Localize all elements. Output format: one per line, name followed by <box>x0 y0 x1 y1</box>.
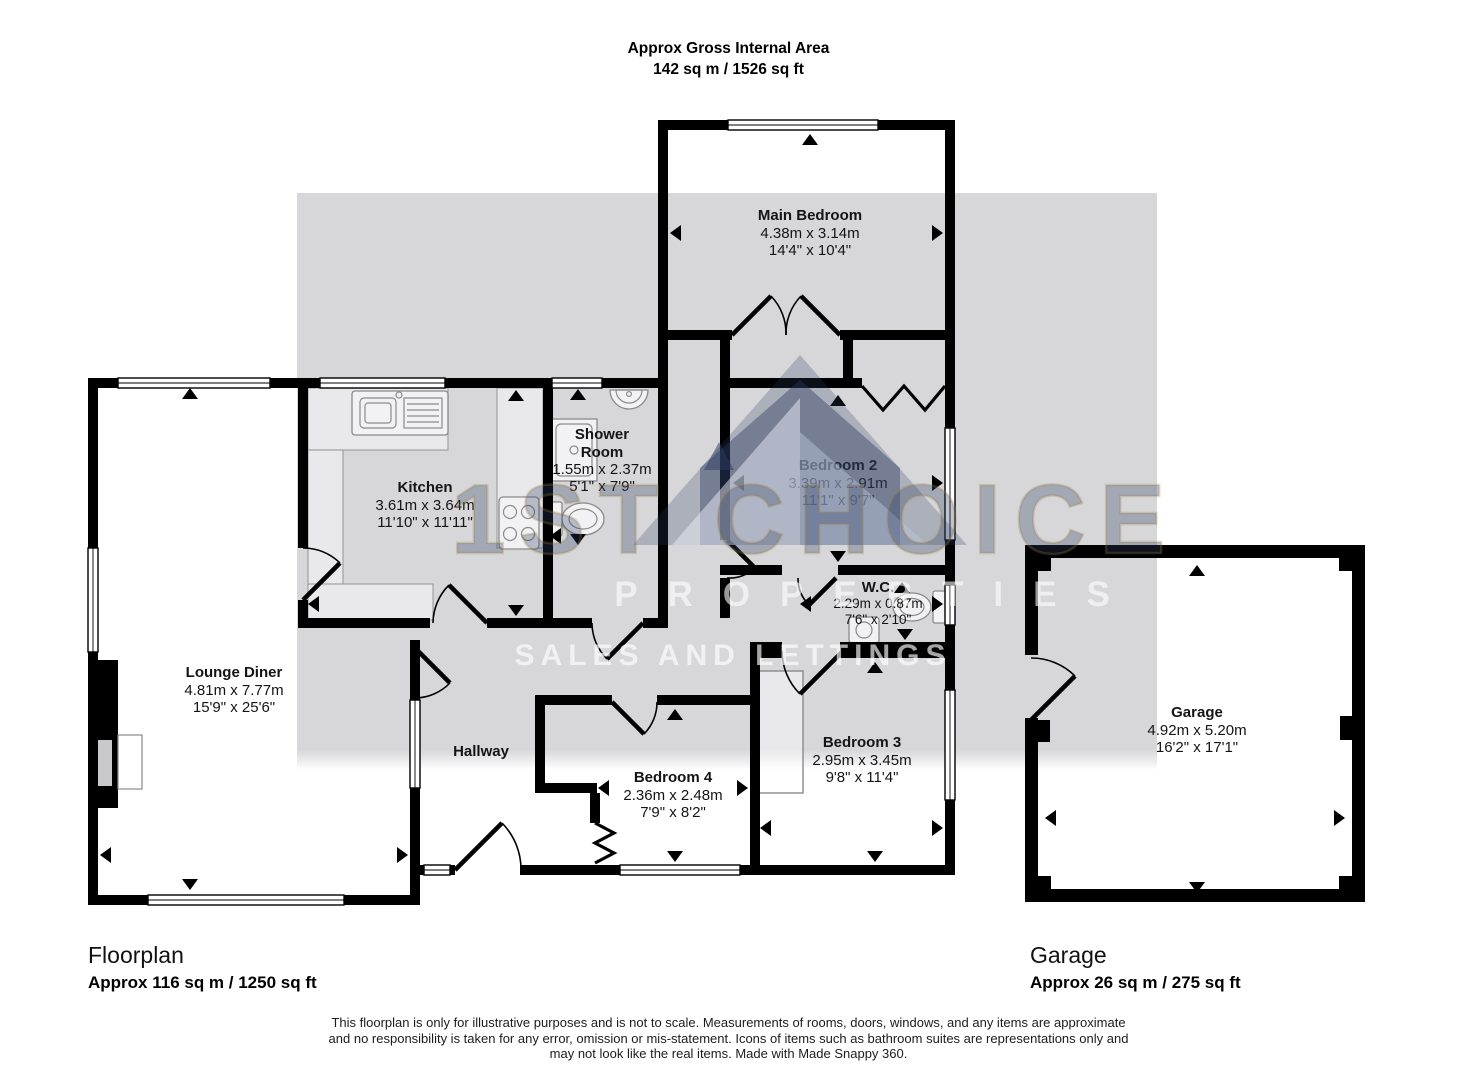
door-front-entry <box>455 823 521 870</box>
garage-imperial: 16'2" x 17'1" <box>1156 739 1238 756</box>
measure-arrow <box>182 879 198 890</box>
garage-name: Garage <box>1171 704 1223 721</box>
wall-segment <box>298 618 430 628</box>
garage-area: Approx 26 sq m / 275 sq ft <box>1030 973 1241 993</box>
wall-segment <box>487 618 545 628</box>
kitchen-name: Kitchen <box>397 479 452 496</box>
measure-arrow <box>760 820 771 836</box>
floorplan-footer: Floorplan Approx 116 sq m / 1250 sq ft <box>88 942 317 993</box>
floorplan-area: Approx 116 sq m / 1250 sq ft <box>88 973 317 993</box>
shower-room-name2: Room <box>581 444 624 461</box>
wc-imperial: 7'6" x 2'10" <box>845 612 912 627</box>
bedroom3-metric: 2.95m x 3.45m <box>812 752 911 769</box>
wall-segment <box>1352 545 1365 902</box>
wall-segment <box>298 388 308 548</box>
window <box>148 895 344 905</box>
window <box>320 378 445 388</box>
wall-segment <box>1025 889 1365 902</box>
window <box>728 120 878 130</box>
wall-segment <box>750 865 955 875</box>
measure-arrow <box>1334 810 1345 826</box>
window <box>945 690 955 800</box>
wall-segment <box>750 650 760 875</box>
watermark-line1: 1ST CHOICE <box>451 464 1179 574</box>
wall-segment <box>657 695 760 705</box>
wall-segment <box>840 330 955 340</box>
gross-area-value: 142 sq m / 1526 sq ft <box>0 59 1457 80</box>
window <box>118 378 270 388</box>
disclaimer-line3: may not look like the real items. Made w… <box>0 1046 1457 1062</box>
measure-arrow <box>182 388 198 399</box>
measure-arrow <box>1045 810 1056 826</box>
bedroom3-name: Bedroom 3 <box>823 734 901 751</box>
main-bedroom-imperial: 14'4" x 10'4" <box>769 242 851 259</box>
wall-segment <box>1038 720 1050 742</box>
garage-footer: Garage Approx 26 sq m / 275 sq ft <box>1030 942 1241 993</box>
lounge-diner-metric: 4.81m x 7.77m <box>184 682 283 699</box>
wall-segment <box>535 695 545 790</box>
watermark-line2: PROPERTIES <box>614 575 1140 614</box>
floorplan-label: Floorplan <box>88 942 317 969</box>
measure-arrow <box>867 851 883 862</box>
disclaimer: This floorplan is only for illustrative … <box>0 1015 1457 1062</box>
main-bedroom-name: Main Bedroom <box>758 207 862 224</box>
wall-segment <box>535 783 597 793</box>
wall-segment <box>543 618 592 628</box>
watermark-line3: SALES AND LETTINGS <box>515 639 952 672</box>
gross-internal-area-header: Approx Gross Internal Area 142 sq m / 15… <box>0 38 1457 80</box>
garage-label: Garage <box>1030 942 1241 969</box>
window <box>552 378 602 388</box>
measure-arrow <box>100 847 111 863</box>
garage-metric: 4.92m x 5.20m <box>1147 722 1246 739</box>
window <box>620 865 740 875</box>
wall-segment <box>1339 876 1352 889</box>
measure-arrow <box>1189 565 1205 576</box>
bifold-door-bedroom4 <box>595 823 614 863</box>
hallway-name: Hallway <box>453 743 510 760</box>
lounge-diner-imperial: 15'9" x 25'6" <box>193 699 275 716</box>
window <box>424 865 450 875</box>
measure-arrow <box>667 851 683 862</box>
wall-segment <box>535 695 612 705</box>
wall-segment <box>1038 876 1051 889</box>
shower-room-name1: Shower <box>575 426 629 443</box>
kitchen-sink-icon <box>352 391 448 435</box>
wall-segment <box>590 793 600 823</box>
bedroom4-imperial: 7'9" x 8'2" <box>640 804 706 821</box>
wall-segment <box>843 335 853 383</box>
measure-arrow <box>932 820 943 836</box>
lounge-diner-name: Lounge Diner <box>186 664 283 681</box>
floorplan-page: Main Bedroom 4.38m x 3.14m 14'4" x 10'4"… <box>0 0 1457 1080</box>
bedroom4-name: Bedroom 4 <box>634 769 713 786</box>
gross-area-title: Approx Gross Internal Area <box>0 38 1457 59</box>
floorplan-drawing: Main Bedroom 4.38m x 3.14m 14'4" x 10'4"… <box>0 0 1457 1080</box>
window <box>88 548 98 652</box>
measure-arrow <box>802 134 818 145</box>
measure-arrow <box>737 780 748 796</box>
bedroom3-imperial: 9'8" x 11'4" <box>826 769 899 786</box>
wall-segment <box>520 865 545 875</box>
disclaimer-line2: and no responsibility is taken for any e… <box>0 1031 1457 1047</box>
wall-segment <box>668 330 732 340</box>
disclaimer-line1: This floorplan is only for illustrative … <box>0 1015 1457 1031</box>
wall-segment <box>1025 718 1038 902</box>
wall-segment <box>1339 558 1352 571</box>
bedroom4-metric: 2.36m x 2.48m <box>623 787 722 804</box>
kitchen-counter-bottom <box>308 584 433 620</box>
main-bedroom-metric: 4.38m x 3.14m <box>760 225 859 242</box>
measure-arrow <box>397 847 408 863</box>
wall-segment <box>1340 716 1352 740</box>
window <box>410 700 420 788</box>
